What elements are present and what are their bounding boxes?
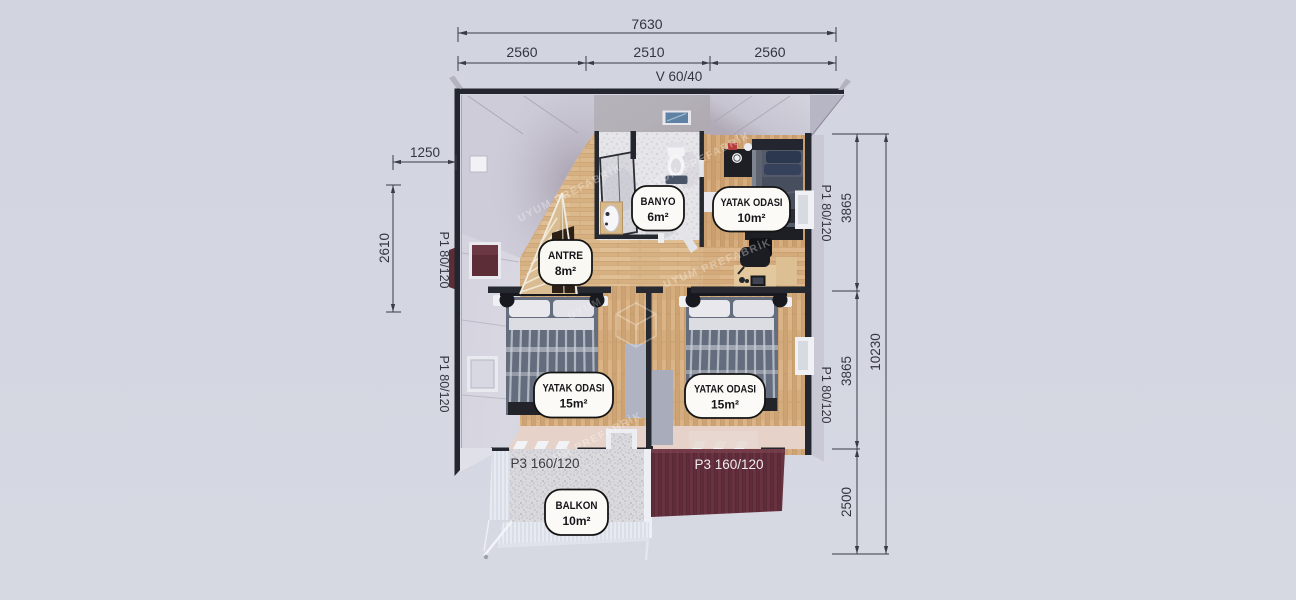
svg-text:15m²: 15m²	[711, 398, 739, 412]
svg-text:1250: 1250	[410, 145, 440, 160]
svg-text:2610: 2610	[377, 233, 392, 263]
svg-text:2510: 2510	[633, 44, 664, 60]
svg-text:BANYO: BANYO	[641, 196, 676, 208]
svg-text:P3 160/120: P3 160/120	[694, 457, 763, 472]
svg-text:P1 80/120: P1 80/120	[819, 185, 833, 242]
svg-text:6m²: 6m²	[647, 210, 668, 224]
svg-text:10m²: 10m²	[737, 211, 765, 225]
svg-text:P3 160/120: P3 160/120	[510, 456, 579, 471]
svg-text:10m²: 10m²	[562, 514, 590, 528]
svg-text:V 60/40: V 60/40	[656, 69, 703, 84]
svg-text:YATAK ODASI: YATAK ODASI	[721, 197, 783, 209]
svg-text:2560: 2560	[754, 44, 785, 60]
svg-text:YATAK ODASI: YATAK ODASI	[694, 384, 756, 396]
svg-text:BALKON: BALKON	[556, 500, 598, 512]
svg-text:YATAK ODASI: YATAK ODASI	[543, 383, 605, 395]
svg-text:15m²: 15m²	[559, 397, 587, 411]
svg-text:3865: 3865	[839, 193, 854, 223]
svg-text:7630: 7630	[631, 16, 662, 32]
svg-text:2560: 2560	[506, 44, 537, 60]
svg-text:2500: 2500	[839, 487, 854, 517]
svg-text:3865: 3865	[839, 356, 854, 386]
svg-text:ANTRE: ANTRE	[548, 250, 583, 262]
svg-text:P1 80/120: P1 80/120	[437, 356, 451, 413]
svg-text:P1 80/120: P1 80/120	[819, 367, 833, 424]
svg-text:10230: 10230	[868, 333, 883, 371]
svg-text:8m²: 8m²	[555, 264, 576, 278]
svg-text:P1 80/120: P1 80/120	[437, 232, 451, 289]
